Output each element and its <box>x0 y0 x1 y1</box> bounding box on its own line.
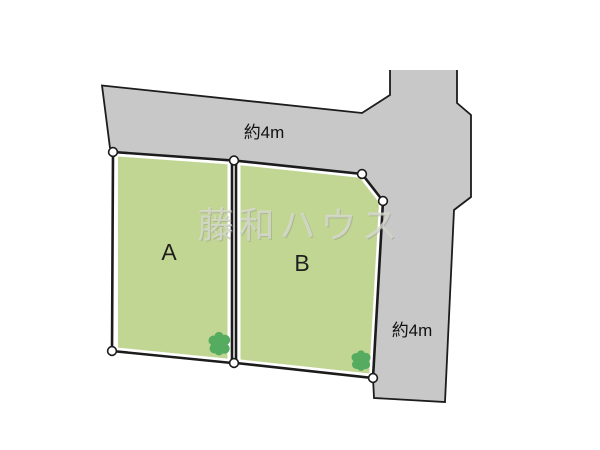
watermark-text: 藤和ハウス <box>197 205 402 246</box>
boundary-marker <box>230 156 239 165</box>
lot-a-label: A <box>161 239 177 265</box>
road-width-label-top: 約4m <box>244 123 285 142</box>
boundary-marker <box>230 359 239 368</box>
tree-icon <box>352 350 371 371</box>
site-plan: A B 約4m 約4m 藤和ハウス 藤和ハウス <box>0 0 600 450</box>
site-plan-canvas: A B 約4m 約4m 藤和ハウス 藤和ハウス <box>0 0 600 450</box>
road-width-label-right: 約4m <box>392 321 433 340</box>
boundary-marker <box>108 347 117 356</box>
boundary-marker <box>109 148 118 157</box>
boundary-marker <box>358 170 367 179</box>
boundary-marker <box>369 374 378 383</box>
lot-b-area <box>241 165 380 373</box>
watermark: 藤和ハウス 藤和ハウス <box>197 205 403 247</box>
lot-b-label: B <box>294 250 309 276</box>
